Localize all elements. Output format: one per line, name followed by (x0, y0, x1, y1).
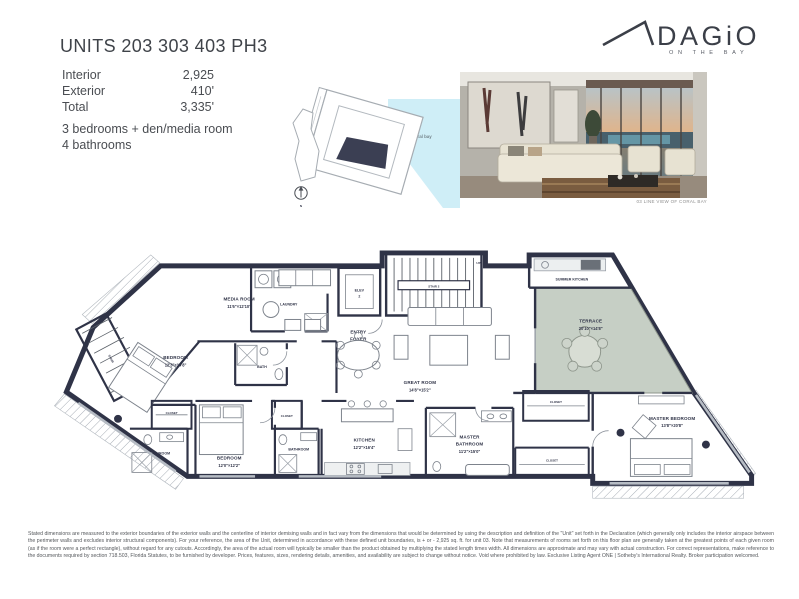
room-label-media: MEDIA ROOM (223, 297, 254, 302)
bed (630, 439, 692, 477)
page-title: UNITS 203 303 403 PH3 (60, 36, 268, 57)
sofa (408, 308, 491, 326)
room-dims-media: 11'6"×12'10" (227, 304, 251, 309)
room-label-laundry: LAUNDRY (280, 303, 298, 307)
room-label-bedroom2: BEDROOM (217, 456, 242, 461)
floorplan-sheet: UNITS 203 303 403 PH3 Interior 2,925 Ext… (0, 0, 799, 599)
svg-text:BATHROOM: BATHROOM (456, 442, 484, 447)
logo-a-mark-icon (603, 22, 653, 45)
room-label-master-bed: MASTER BEDROOM (649, 416, 695, 421)
site-key-plan: coral bay N (285, 85, 460, 210)
feature-list: 3 bedrooms + den/media room 4 bathrooms (62, 121, 233, 153)
compass-label: N (300, 204, 302, 208)
legal-disclaimer: Stated dimensions are measured to the ex… (28, 531, 774, 561)
room-dims-master-bath: 11'2"×15'0" (459, 449, 481, 454)
logo-tagline: ON THE BAY (669, 50, 748, 56)
adagio-logo: DAGiO ON THE BAY (597, 14, 777, 58)
room-dims-bedroom1: 12'3"×14'8" (165, 363, 187, 368)
room-label-entry: ENTRY (350, 329, 366, 334)
room-dims-kitchen: 12'2"×16'4" (353, 445, 375, 450)
wall-art (468, 82, 578, 148)
room-label-summer-kitchen: SUMMER KITCHEN (556, 278, 589, 282)
floorplan-drawing: TERRACE 20'10"×14'8" SUMMER KITCHEN ELEV… (48, 244, 764, 532)
column (617, 429, 625, 437)
feature-line: 3 bedrooms + den/media room (62, 121, 233, 137)
room-label-stair2: STAIR 2 (428, 285, 440, 289)
area-row-interior: Interior 2,925 (62, 67, 214, 83)
room-label-terrace: TERRACE (579, 318, 602, 323)
room-label-bath: BATH (257, 365, 267, 369)
area-row-exterior: Exterior 410' (62, 83, 214, 99)
room-label-kitchen: KITCHEN (354, 438, 375, 443)
bathtub (466, 464, 510, 475)
column (702, 441, 710, 449)
room-dims-master-bed: 13'8"×20'8" (661, 423, 683, 428)
coffee-table (430, 335, 468, 365)
svg-text:UP: UP (476, 261, 480, 265)
feature-line: 4 bathrooms (62, 137, 233, 153)
room-dims-great: 14'8"×15'2" (409, 387, 431, 392)
room-dims-terrace: 20'10"×14'8" (579, 326, 603, 331)
room-label-bedroom1: BEDROOM (163, 355, 188, 360)
area-value: 2,925 (146, 67, 214, 83)
area-label: Total (62, 99, 146, 115)
area-label: Exterior (62, 83, 146, 99)
room-label-closet: CLOSET (166, 411, 178, 415)
area-table: Interior 2,925 Exterior 410' Total 3,335… (62, 67, 214, 115)
bed (199, 405, 243, 455)
room-label-elev: ELEV (355, 289, 365, 293)
kitchen-island (341, 409, 393, 422)
svg-text:CLOSET: CLOSET (281, 414, 293, 418)
area-label: Interior (62, 67, 146, 83)
sofa (279, 270, 331, 286)
area-value: 3,335' (146, 99, 214, 115)
interior-rendering-image (460, 72, 707, 198)
room-label-master-bath: MASTER (460, 435, 481, 440)
compass-icon: N (295, 186, 307, 208)
area-row-total: Total 3,335' (62, 99, 214, 115)
room-label-great: GREAT ROOM (404, 380, 437, 385)
terrace-area: TERRACE 20'10"×14'8" (535, 288, 692, 393)
room-label-bathroom2: BATHROOM (288, 448, 309, 452)
svg-text:CLOSET: CLOSET (546, 458, 558, 462)
svg-text:2: 2 (358, 295, 360, 299)
room-dims-bedroom2: 12'0"×12'2" (218, 463, 240, 468)
logo-brand-text: DAGiO (657, 21, 760, 51)
area-value: 410' (146, 83, 214, 99)
column (114, 415, 122, 423)
photo-caption: 03 LINE VIEW OF CORAL BAY (460, 199, 707, 204)
svg-text:CLOSET: CLOSET (550, 400, 562, 404)
